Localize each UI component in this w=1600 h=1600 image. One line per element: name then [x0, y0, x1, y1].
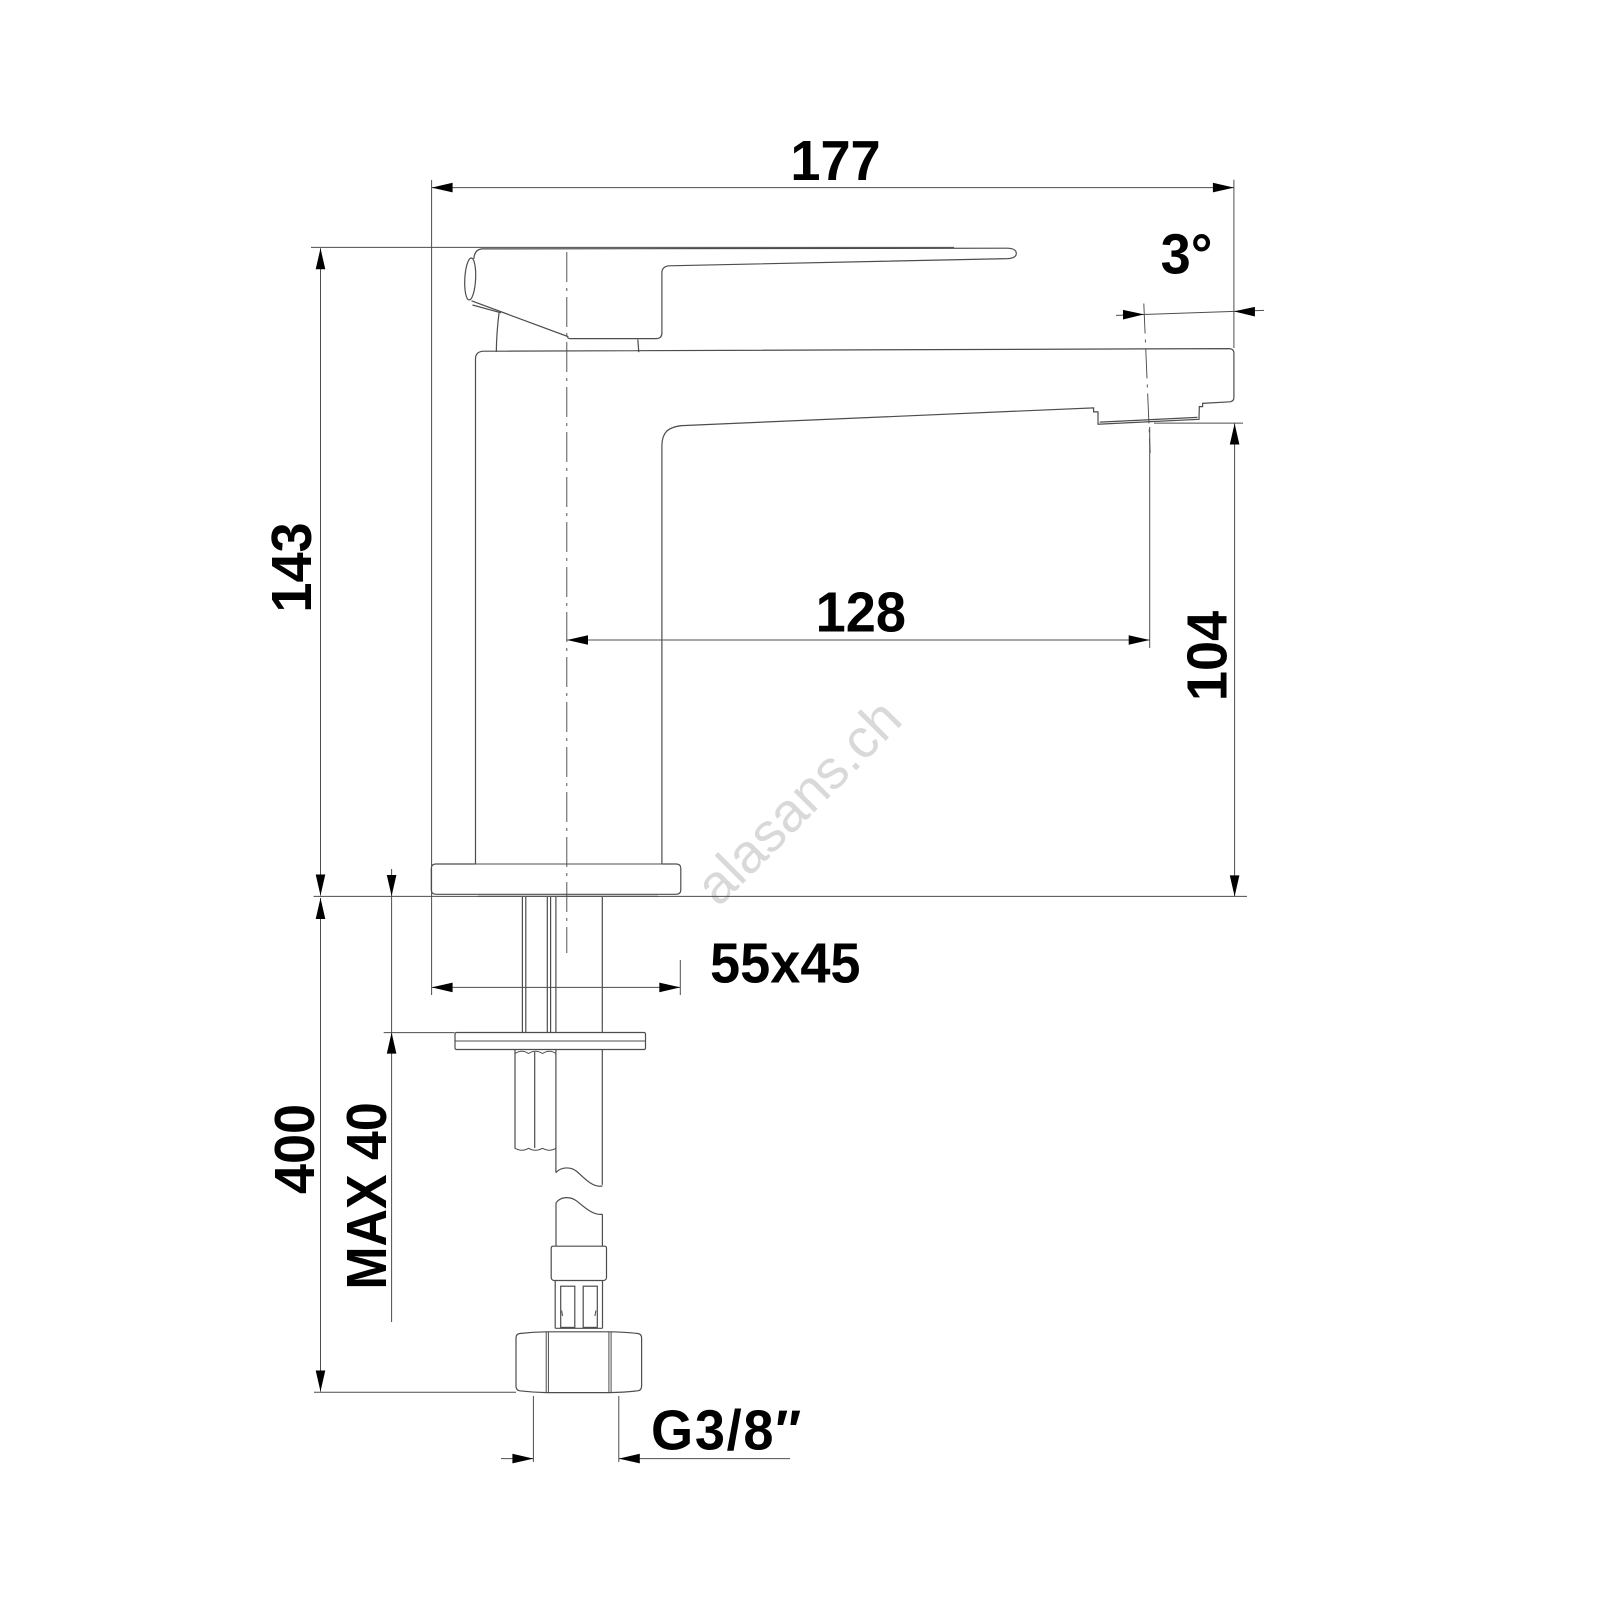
svg-text:G3/8″: G3/8″	[651, 1398, 803, 1462]
svg-text:177: 177	[790, 129, 880, 193]
svg-text:alasans.ch: alasans.ch	[683, 687, 913, 917]
svg-text:400: 400	[263, 1104, 327, 1194]
svg-text:128: 128	[816, 580, 906, 644]
svg-text:55x45: 55x45	[710, 931, 861, 995]
svg-text:MAX 40: MAX 40	[335, 1102, 399, 1289]
svg-text:104: 104	[1175, 611, 1239, 701]
svg-text:3°: 3°	[1161, 222, 1213, 286]
svg-text:143: 143	[260, 522, 324, 612]
